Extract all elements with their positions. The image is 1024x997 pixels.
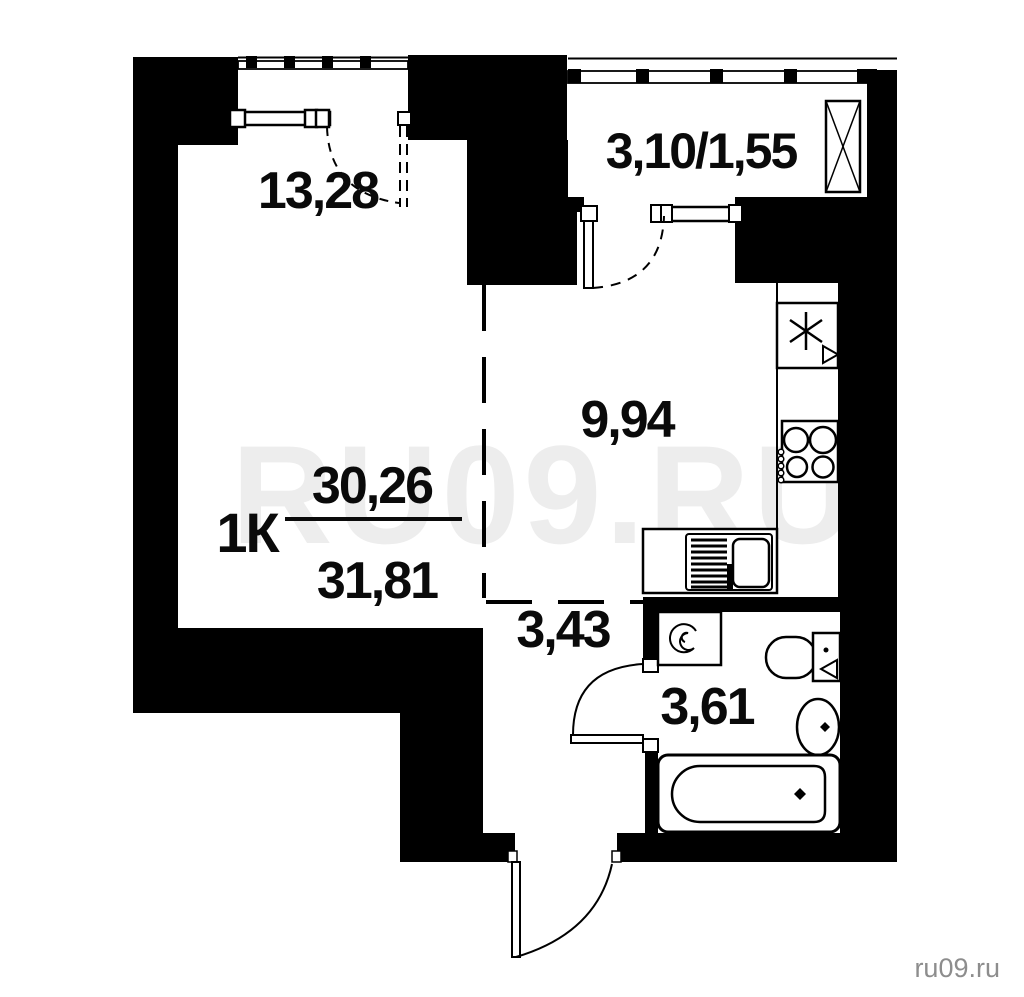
glazing-post <box>246 56 257 68</box>
wall-segment <box>735 197 897 283</box>
wall-segment <box>643 597 840 612</box>
faucet <box>727 564 733 590</box>
wall-segment <box>467 197 577 285</box>
bathroom-door-arc <box>573 664 643 735</box>
door-jamb <box>508 851 517 862</box>
glazing-post <box>636 69 649 83</box>
window-cap <box>316 110 329 127</box>
glazing-post <box>360 56 371 68</box>
toilet-icon <box>766 633 840 681</box>
floor-plan: RU09.RU <box>0 0 1024 997</box>
kitchen-balcony-door-leaf <box>584 221 593 288</box>
window-cap <box>661 205 672 222</box>
wall-segment <box>408 55 567 140</box>
kitchen-sink-icon <box>643 529 777 593</box>
glazing-post <box>784 69 797 83</box>
wall-segment <box>133 628 483 713</box>
kitchen-area-label: 9,94 <box>580 391 675 449</box>
total-area-value: 31,81 <box>317 552 438 610</box>
wall-segment <box>838 283 897 599</box>
hallway-area-label: 3,43 <box>516 601 610 659</box>
door-jamb <box>398 112 411 125</box>
living-area-value: 30,26 <box>312 457 433 515</box>
door-jamb <box>643 739 658 752</box>
wall-segment <box>400 713 483 862</box>
door-jamb <box>612 851 621 862</box>
glazing-post <box>568 69 581 83</box>
stove-icon <box>778 421 838 483</box>
living-room-area-label: 13,28 <box>258 162 379 220</box>
door-jamb <box>581 206 597 221</box>
wall-segment <box>467 140 568 200</box>
bathroom-door-leaf <box>571 735 643 743</box>
entry-door-leaf <box>512 862 520 957</box>
wall-segment <box>133 57 178 713</box>
fridge-icon <box>777 303 838 368</box>
wall-segment <box>840 597 897 862</box>
door-jamb <box>643 659 658 672</box>
wall-segment <box>645 747 658 833</box>
wall-segment <box>867 70 897 197</box>
glazing-post <box>322 56 333 68</box>
loggia-glazing <box>238 56 897 83</box>
floor-plan-canvas: RU09.RU <box>0 0 1024 997</box>
kitchen-balcony-door-arc <box>593 216 664 288</box>
wall-segment <box>617 833 845 862</box>
glazing-post <box>710 69 723 83</box>
bathtub-icon <box>658 755 840 832</box>
window-cap <box>230 110 245 127</box>
glazing-post <box>857 69 877 83</box>
window-cap <box>729 205 742 222</box>
wardrobe-icon <box>826 101 860 192</box>
washing-machine-icon <box>658 612 721 665</box>
entry-door-arc <box>516 864 612 957</box>
loggia-area-label: 3,10/1,55 <box>606 123 798 179</box>
washbasin-icon <box>797 699 839 755</box>
unit-type-label: 1К <box>216 501 280 564</box>
bathroom-area-label: 3,61 <box>660 678 754 736</box>
site-credit: ru09.ru <box>914 953 1000 983</box>
glazing-post <box>284 56 295 68</box>
fraction-line <box>285 517 462 521</box>
